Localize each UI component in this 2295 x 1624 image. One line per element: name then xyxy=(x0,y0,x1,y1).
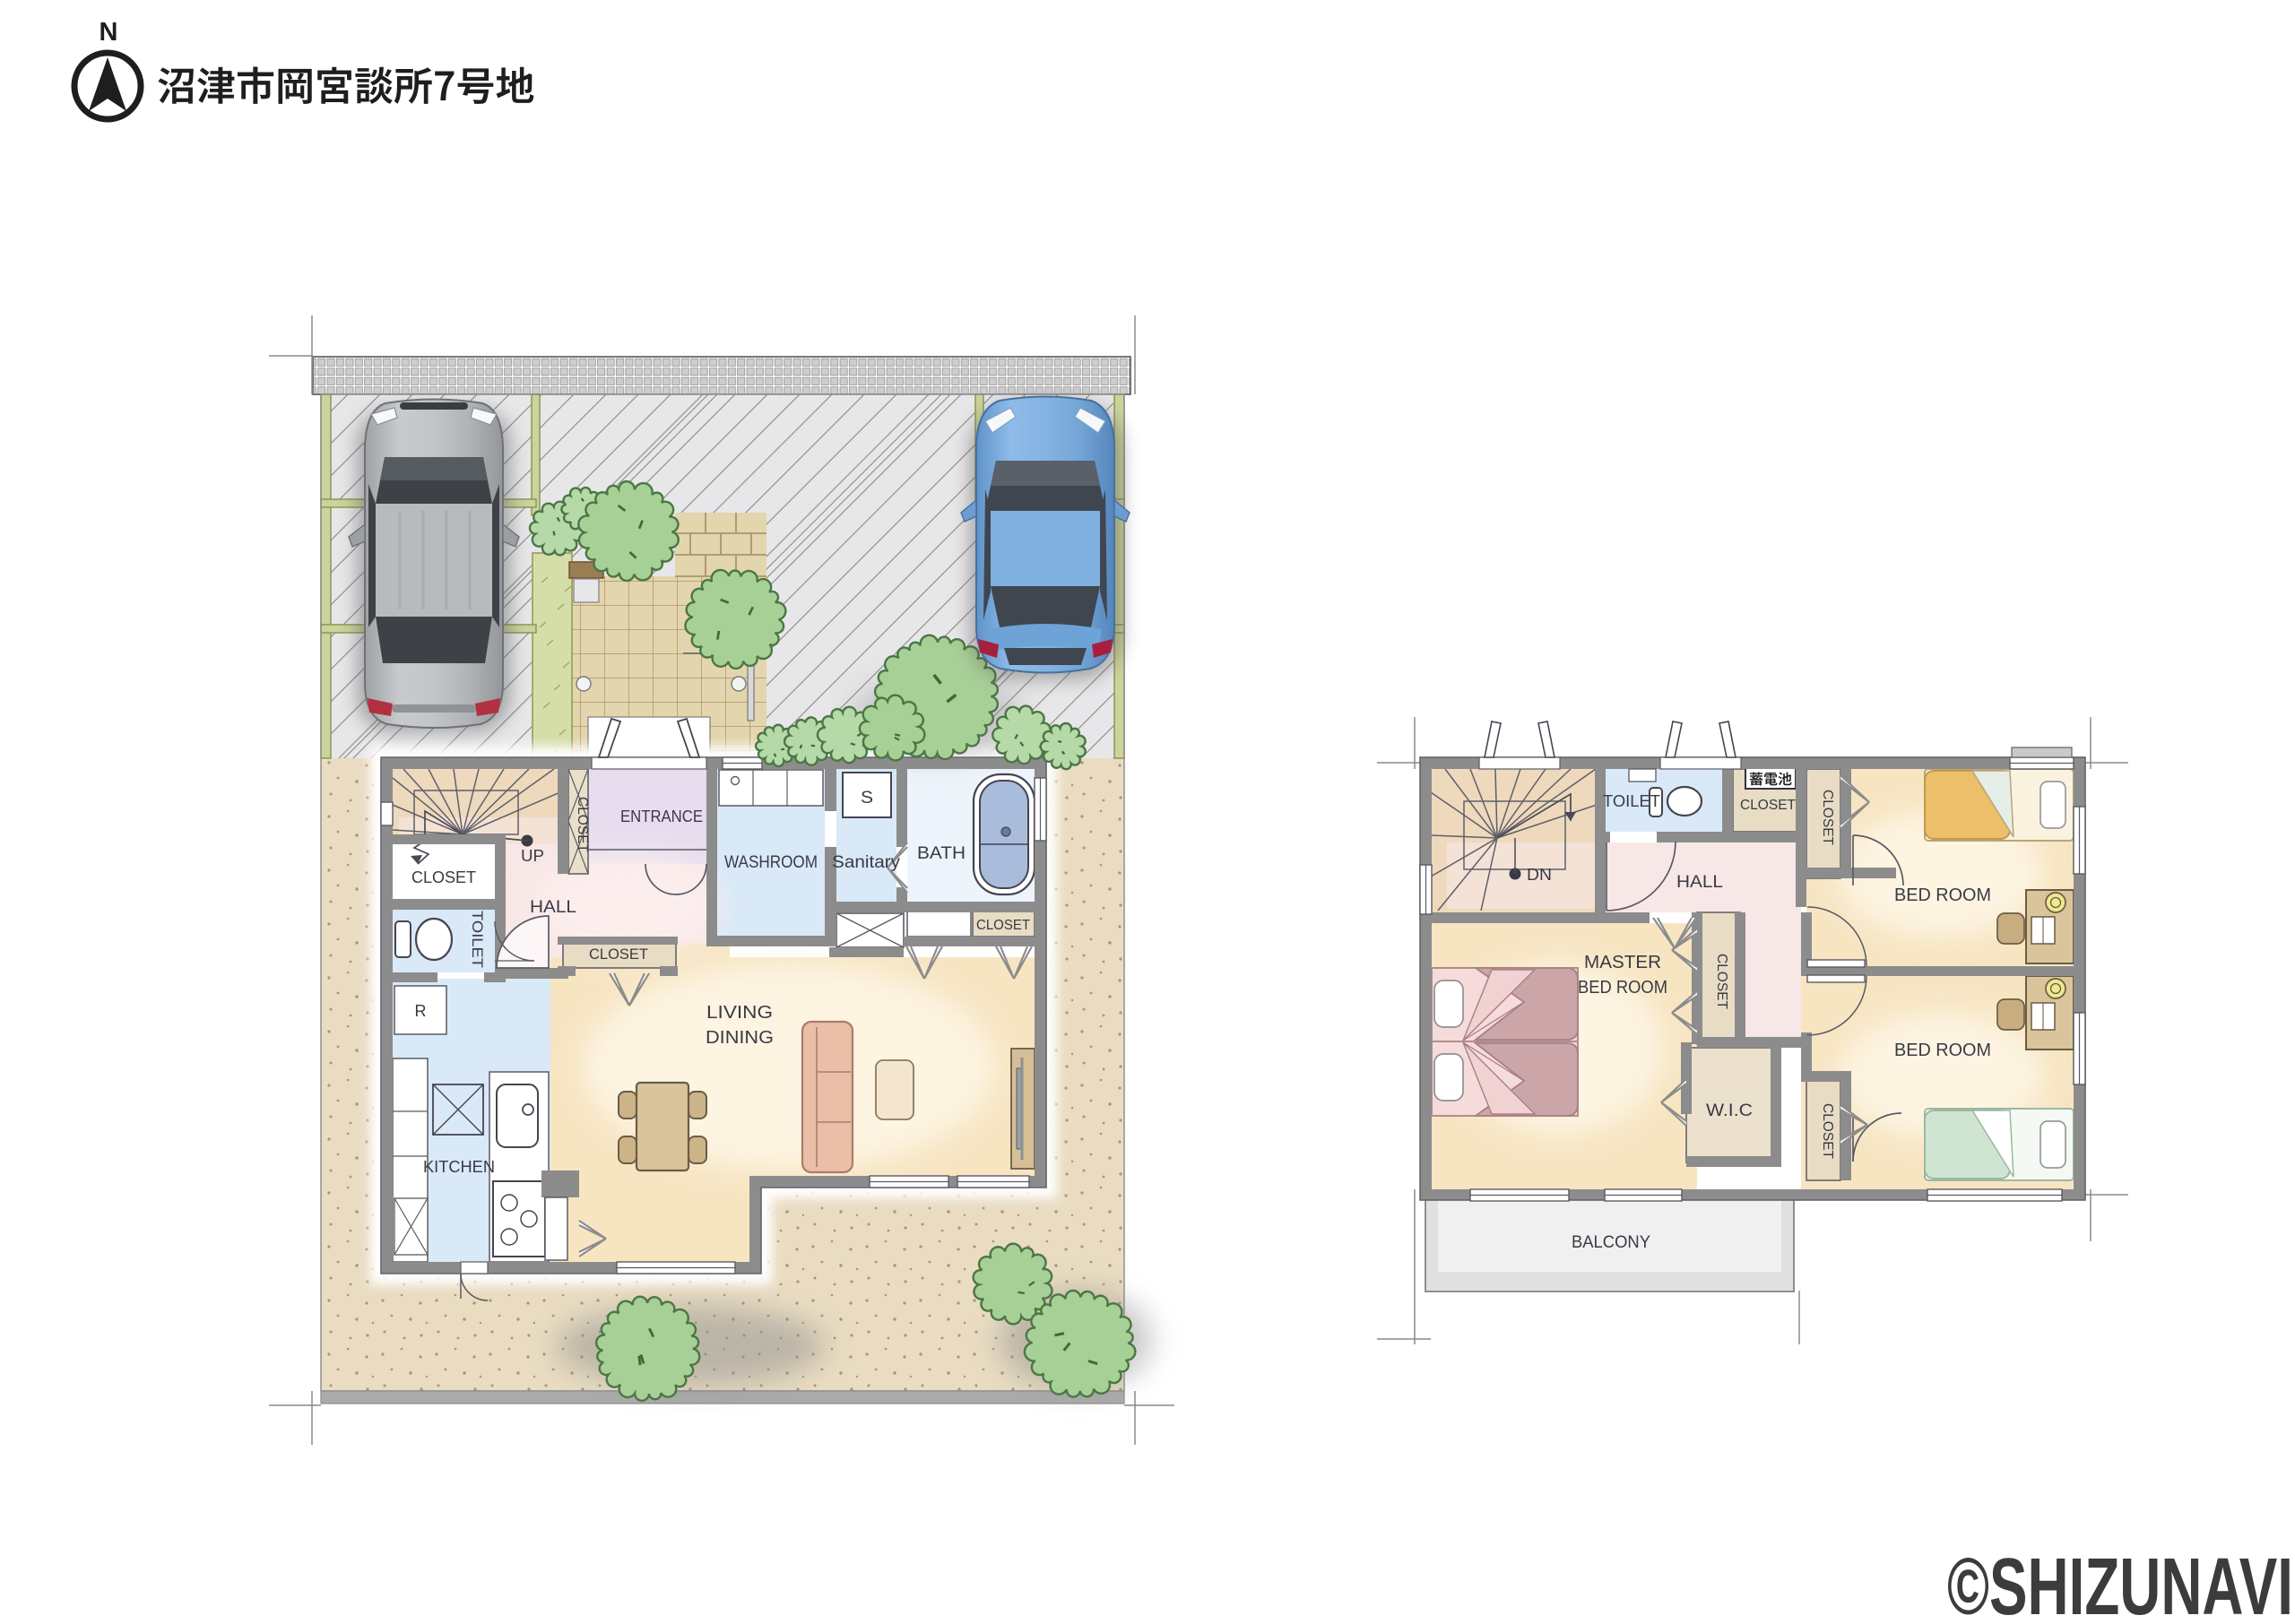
svg-text:W.I.C: W.I.C xyxy=(1706,1101,1753,1120)
svg-text:BED ROOM: BED ROOM xyxy=(1578,978,1667,998)
svg-text:CLOSET: CLOSET xyxy=(976,918,1030,933)
svg-text:DINING: DINING xyxy=(706,1028,774,1048)
svg-text:UP: UP xyxy=(521,847,544,865)
svg-text:CLOSET: CLOSET xyxy=(1820,1103,1835,1159)
svg-text:R: R xyxy=(415,1002,427,1020)
svg-text:LIVING: LIVING xyxy=(706,1003,773,1023)
svg-text:HALL: HALL xyxy=(1676,873,1723,892)
svg-text:©SHIZUNAVI: ©SHIZUNAVI xyxy=(1947,1542,2293,1620)
svg-text:CLOSET: CLOSET xyxy=(1740,798,1796,813)
svg-text:BALCONY: BALCONY xyxy=(1572,1233,1650,1252)
svg-text:MASTER: MASTER xyxy=(1584,953,1661,972)
svg-text:DN: DN xyxy=(1527,866,1552,884)
svg-text:CLOSET: CLOSET xyxy=(411,868,476,886)
svg-text:ENTRANCE: ENTRANCE xyxy=(620,808,703,825)
svg-text:CLOSET: CLOSET xyxy=(1820,790,1835,845)
svg-text:BED ROOM: BED ROOM xyxy=(1894,1041,1991,1060)
svg-text:WASHROOM: WASHROOM xyxy=(724,853,818,872)
svg-text:TOILET: TOILET xyxy=(1603,792,1660,810)
svg-text:N: N xyxy=(100,18,118,47)
svg-text:CLOSET: CLOSET xyxy=(1714,954,1729,1009)
svg-text:BED ROOM: BED ROOM xyxy=(1894,885,1991,905)
svg-text:KITCHEN: KITCHEN xyxy=(423,1158,495,1176)
svg-text:CLOSET: CLOSET xyxy=(589,946,648,963)
svg-text:HALL: HALL xyxy=(530,898,576,917)
svg-text:Sanitary: Sanitary xyxy=(832,853,901,872)
svg-text:BATH: BATH xyxy=(917,844,966,863)
svg-text:S: S xyxy=(861,789,873,808)
svg-text:CLOSET: CLOSET xyxy=(575,797,590,852)
svg-text:TOILET: TOILET xyxy=(469,911,486,968)
